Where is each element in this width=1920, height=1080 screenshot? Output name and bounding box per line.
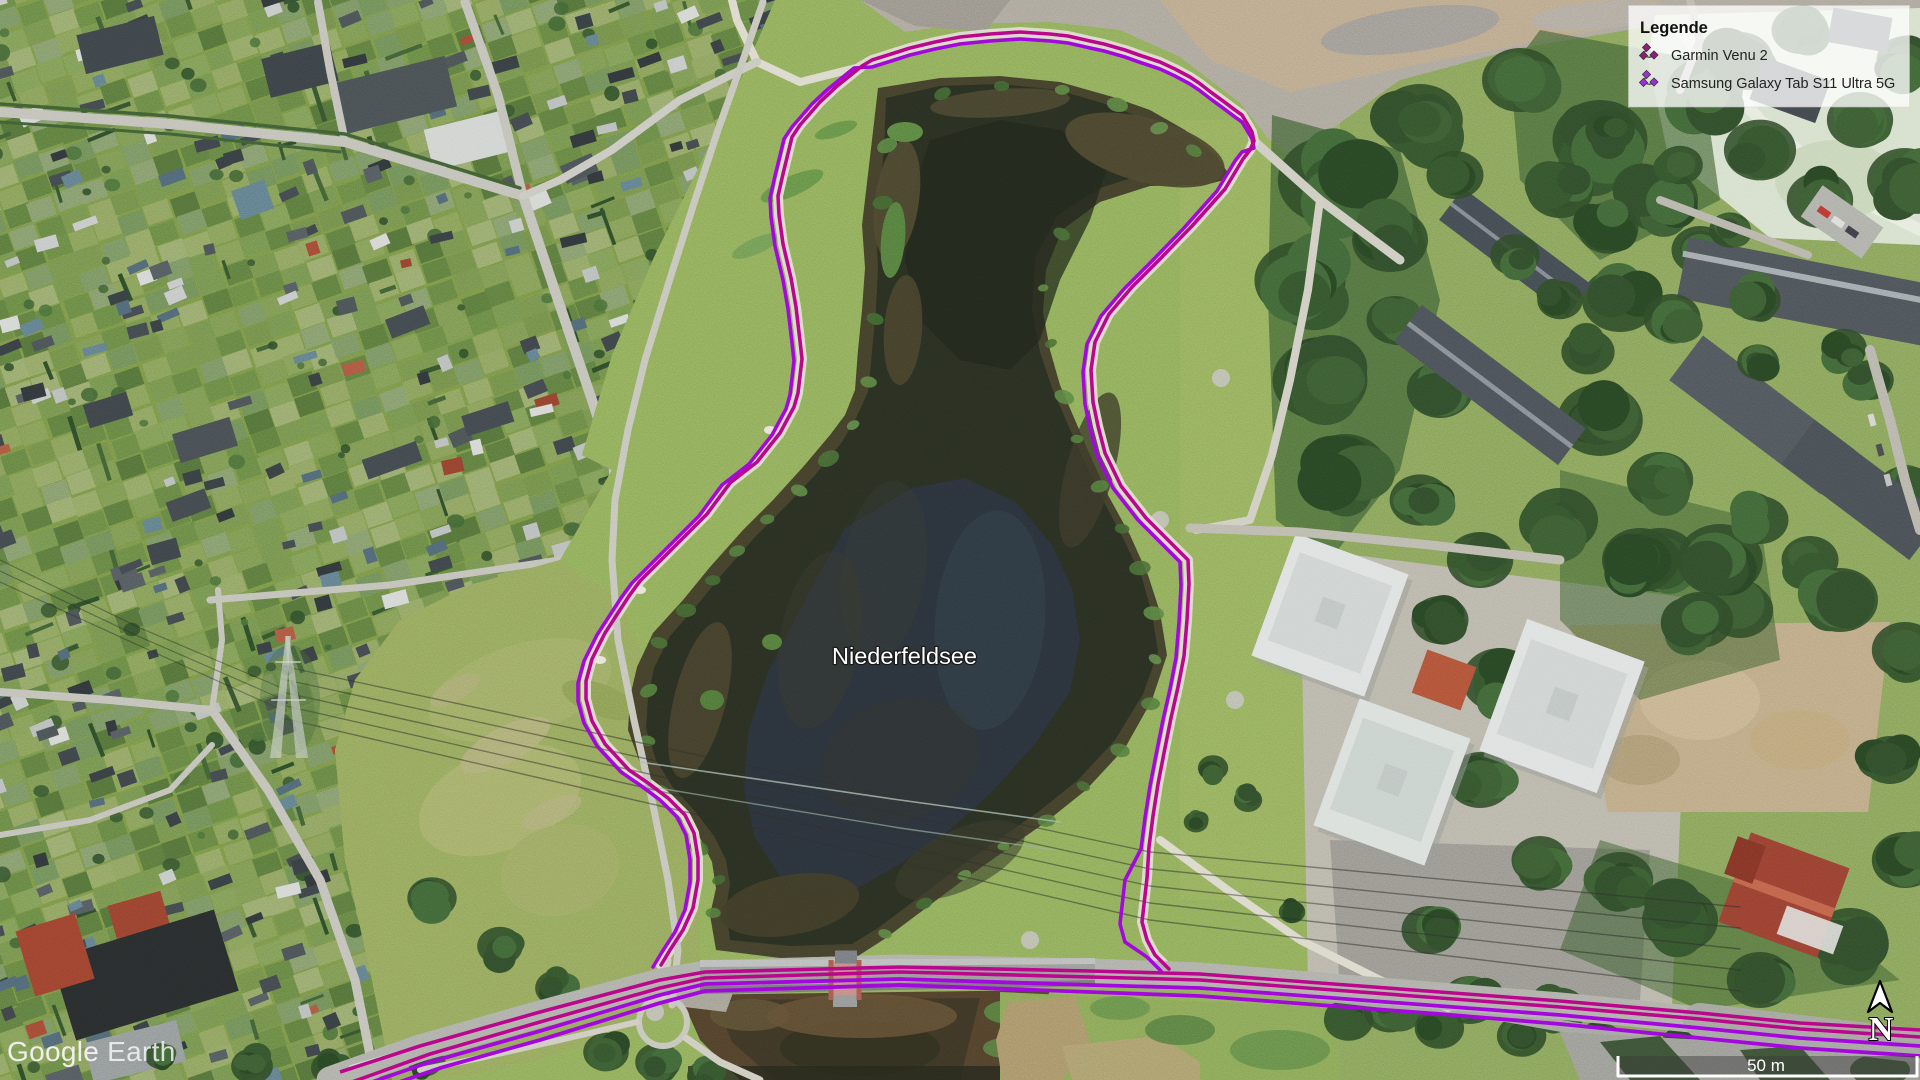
svg-text:Google Earth: Google Earth xyxy=(7,1036,176,1067)
svg-text:N: N xyxy=(1869,1011,1894,1048)
svg-text:Niederfeldsee: Niederfeldsee xyxy=(832,643,977,669)
svg-text:50 m: 50 m xyxy=(1747,1056,1785,1075)
svg-text:Garmin Venu 2: Garmin Venu 2 xyxy=(1671,48,1768,64)
svg-text:Samsung Galaxy Tab S11 Ultra 5: Samsung Galaxy Tab S11 Ultra 5G xyxy=(1671,76,1895,92)
svg-text:Legende: Legende xyxy=(1640,19,1708,37)
